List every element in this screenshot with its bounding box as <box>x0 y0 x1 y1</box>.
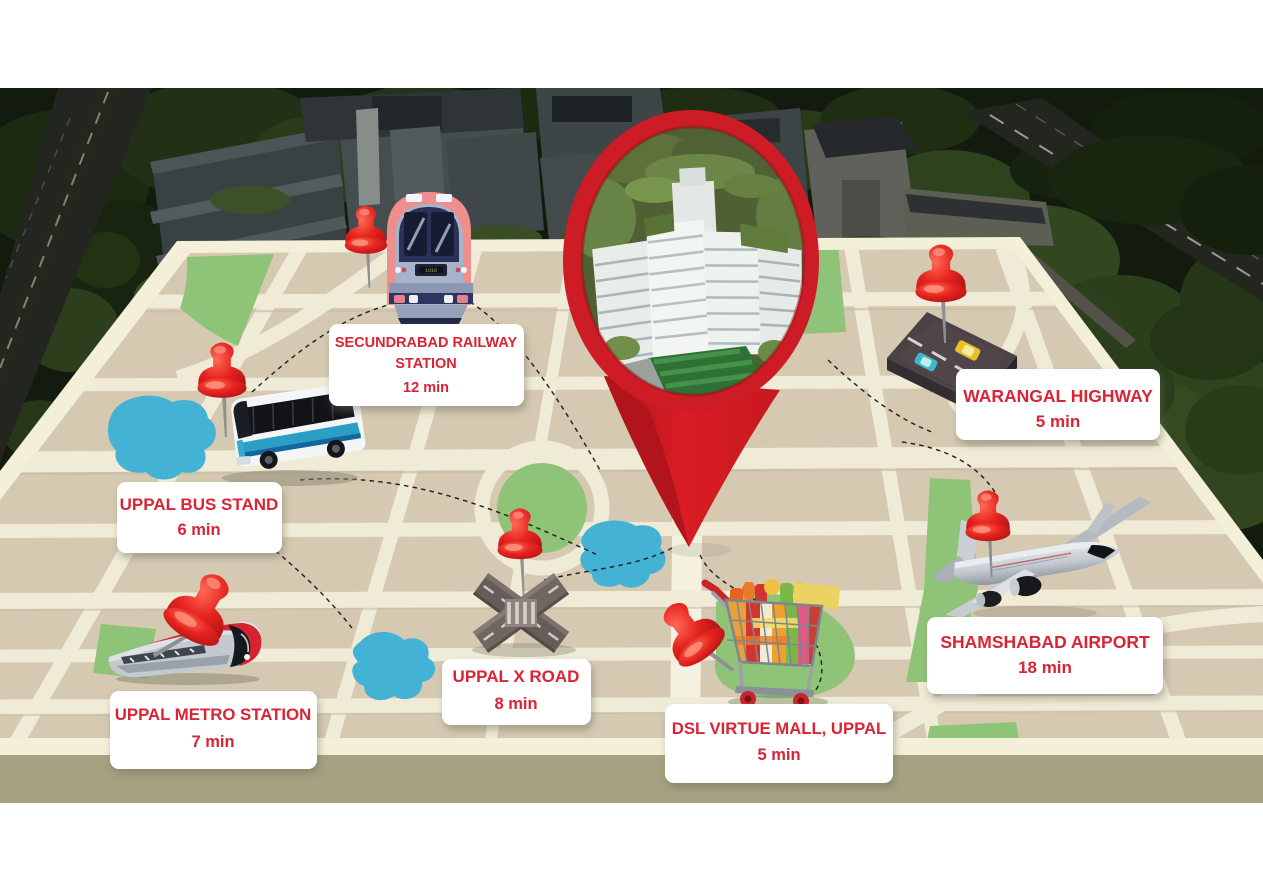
svg-text:12 min: 12 min <box>403 380 449 396</box>
svg-text:DSL VIRTUE MALL, UPPAL: DSL VIRTUE MALL, UPPAL <box>672 719 886 738</box>
svg-text:UPPAL X ROAD: UPPAL X ROAD <box>453 667 580 686</box>
svg-text:7 min: 7 min <box>191 733 234 751</box>
svg-text:SECUNDRABAD RAILWAY: SECUNDRABAD RAILWAY <box>335 335 518 351</box>
svg-text:STATION: STATION <box>395 356 456 372</box>
svg-text:WARANGAL HIGHWAY: WARANGAL HIGHWAY <box>963 386 1153 406</box>
svg-text:18 min: 18 min <box>1018 658 1072 677</box>
svg-text:6 min: 6 min <box>177 521 220 539</box>
svg-text:SHAMSHABAD AIRPORT: SHAMSHABAD AIRPORT <box>940 632 1150 652</box>
svg-text:UPPAL BUS STAND: UPPAL BUS STAND <box>120 495 279 514</box>
svg-text:5 min: 5 min <box>1036 412 1080 431</box>
svg-text:8 min: 8 min <box>494 695 537 713</box>
svg-text:UPPAL METRO STATION: UPPAL METRO STATION <box>115 705 311 724</box>
svg-text:5 min: 5 min <box>757 746 800 764</box>
svg-text:1010: 1010 <box>425 268 437 274</box>
